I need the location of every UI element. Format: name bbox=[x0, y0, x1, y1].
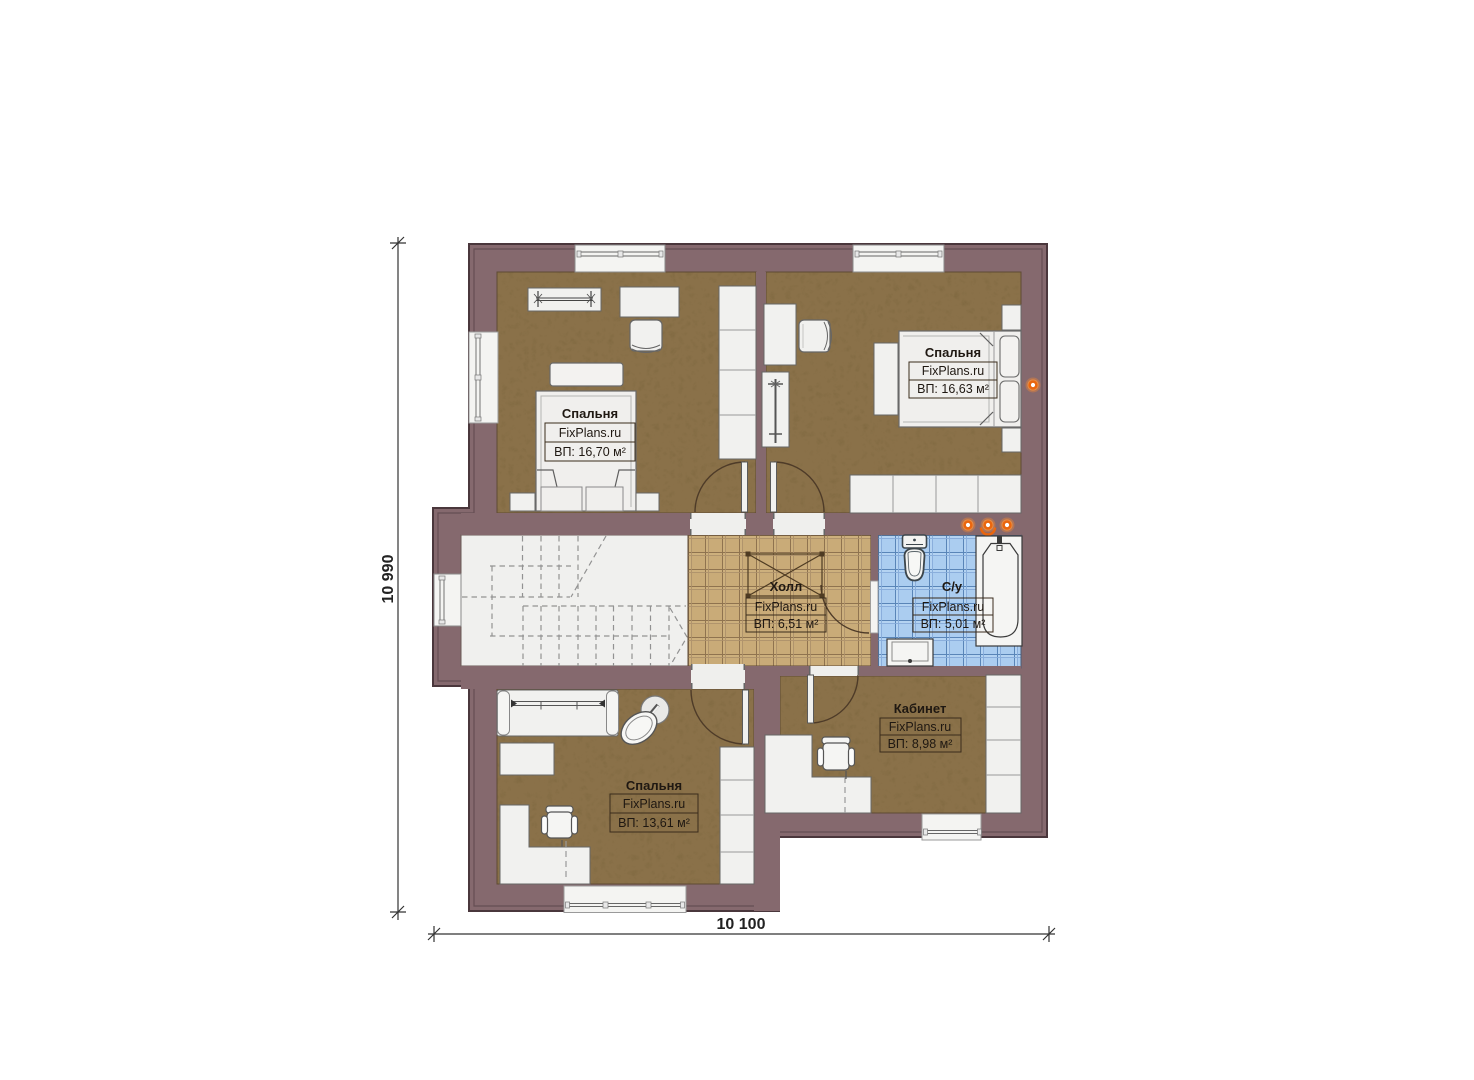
svg-text:Холл: Холл bbox=[770, 579, 803, 594]
svg-text:FixPlans.ru: FixPlans.ru bbox=[755, 600, 818, 614]
svg-text:ВП: 6,51 м²: ВП: 6,51 м² bbox=[754, 617, 819, 631]
svg-text:ВП: 13,61 м²: ВП: 13,61 м² bbox=[618, 816, 690, 830]
svg-text:FixPlans.ru: FixPlans.ru bbox=[559, 426, 622, 440]
svg-text:Спальня: Спальня bbox=[626, 778, 682, 793]
svg-text:ВП: 16,63 м²: ВП: 16,63 м² bbox=[917, 382, 989, 396]
svg-text:FixPlans.ru: FixPlans.ru bbox=[922, 364, 985, 378]
svg-text:FixPlans.ru: FixPlans.ru bbox=[922, 600, 985, 614]
svg-text:FixPlans.ru: FixPlans.ru bbox=[889, 720, 952, 734]
svg-text:С/у: С/у bbox=[942, 579, 963, 594]
svg-text:10 100: 10 100 bbox=[717, 916, 766, 933]
svg-text:ВП: 5,01 м²: ВП: 5,01 м² bbox=[921, 617, 986, 631]
svg-text:Спальня: Спальня bbox=[562, 406, 618, 421]
svg-text:ВП: 8,98 м²: ВП: 8,98 м² bbox=[888, 737, 953, 751]
svg-text:Спальня: Спальня bbox=[925, 345, 981, 360]
svg-text:Кабинет: Кабинет bbox=[894, 701, 947, 716]
svg-text:FixPlans.ru: FixPlans.ru bbox=[623, 797, 686, 811]
svg-text:10 990: 10 990 bbox=[380, 554, 397, 603]
svg-text:ВП: 16,70 м²: ВП: 16,70 м² bbox=[554, 445, 626, 459]
